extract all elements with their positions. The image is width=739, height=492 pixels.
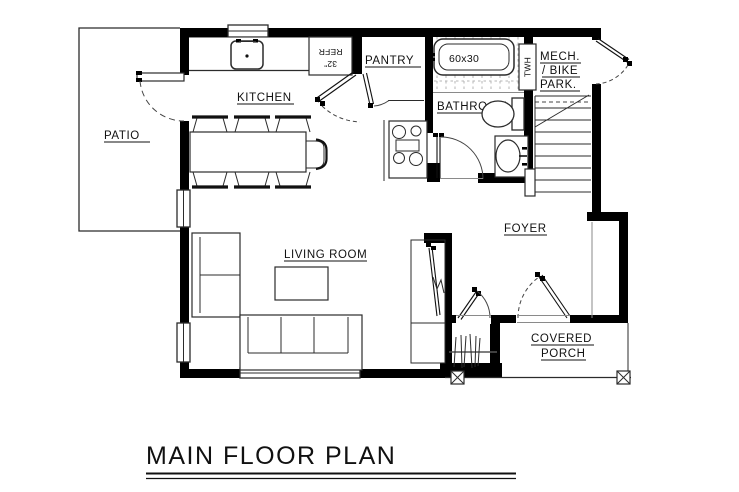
kitchen-window <box>228 25 268 37</box>
refrigerator-label-size: 32" <box>324 59 337 69</box>
room-label-porch-1: COVERED <box>531 333 592 345</box>
pantry-corner-door <box>315 72 360 123</box>
floor-plan-page: PATIO <box>0 0 739 492</box>
living-room: LIVING ROOM <box>192 233 367 370</box>
room-label-pantry: PANTRY <box>365 55 414 67</box>
refrigerator: 32" REFR <box>309 37 352 75</box>
dining-chairs-top <box>192 117 311 132</box>
bathtub-size-label: 60x30 <box>449 53 479 65</box>
porch-column-right <box>617 371 630 384</box>
bathtub: 60x30 <box>429 39 514 75</box>
west-window-lower <box>177 323 190 362</box>
chaise <box>192 233 240 317</box>
mech-bike-park: MECH. / BIKE PARK. <box>540 39 632 92</box>
pantry-door <box>363 73 389 108</box>
vanity-sink <box>495 136 528 177</box>
room-label-mech-3: PARK. <box>540 79 577 91</box>
room-label-kitchen: KITCHEN <box>237 92 292 104</box>
room-label-foyer: FOYER <box>504 223 547 235</box>
hall-cabinet <box>411 240 445 363</box>
room-label-porch-2: PORCH <box>541 348 586 360</box>
room-label-mech-2: / BIKE <box>542 65 578 77</box>
bathroom: 60x30 BATHROOM <box>429 37 528 179</box>
twh-label: TWH <box>523 57 533 77</box>
coffee-table <box>275 267 328 300</box>
drawing-title: MAIN FLOOR PLAN <box>146 442 516 479</box>
stairs <box>525 95 591 196</box>
sofa <box>240 315 362 370</box>
title-text: MAIN FLOOR PLAN <box>146 442 396 470</box>
dining-chair-end <box>306 140 327 170</box>
dining-chairs-bottom <box>192 172 311 187</box>
room-label-patio: PATIO <box>104 130 140 142</box>
closet-hangers <box>449 334 497 368</box>
coat-closet <box>449 287 497 368</box>
room-label-living: LIVING ROOM <box>284 249 367 261</box>
dining-table <box>190 132 306 172</box>
stair-newel <box>525 169 535 196</box>
patio-door <box>136 71 184 121</box>
patio: PATIO <box>79 28 181 231</box>
floor-plan-canvas: PATIO <box>0 0 739 492</box>
west-window-upper <box>177 190 190 227</box>
range-stove <box>384 120 427 181</box>
dining-table-set <box>190 117 327 187</box>
tankless-water-heater: TWH <box>519 44 536 90</box>
interior-walls <box>352 28 535 377</box>
refrigerator-label: REFR <box>319 47 343 57</box>
room-label-mech-1: MECH. <box>540 51 580 63</box>
kitchen: 32" REFR KITCHEN <box>189 37 352 104</box>
kitchen-sink <box>231 39 263 69</box>
bathroom-door <box>433 133 483 179</box>
porch-column-left <box>451 371 464 384</box>
wall-openings <box>179 40 602 324</box>
